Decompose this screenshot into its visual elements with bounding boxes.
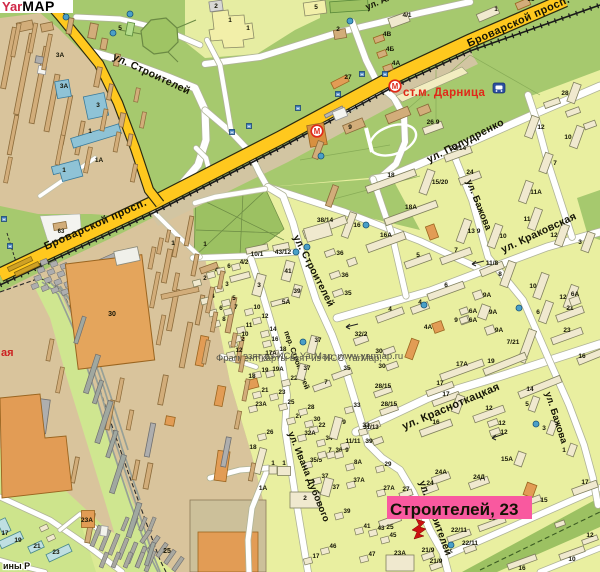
- svg-text:12: 12: [559, 294, 567, 301]
- svg-text:16: 16: [518, 565, 526, 572]
- svg-text:46: 46: [330, 543, 337, 550]
- svg-text:36: 36: [336, 250, 344, 257]
- svg-text:17: 17: [436, 380, 444, 387]
- svg-text:41: 41: [364, 523, 371, 530]
- svg-text:37А: 37А: [353, 477, 365, 484]
- svg-text:28/15: 28/15: [381, 401, 398, 408]
- svg-text:27А: 27А: [383, 485, 395, 492]
- svg-text:10: 10: [529, 283, 537, 290]
- svg-text:33: 33: [527, 0, 535, 3]
- svg-text:6: 6: [219, 305, 223, 312]
- svg-text:28/15: 28/15: [375, 383, 392, 390]
- svg-text:14: 14: [270, 326, 277, 333]
- svg-text:Н: Н: [8, 244, 11, 249]
- svg-text:21/9: 21/9: [422, 547, 435, 554]
- svg-text:35: 35: [344, 290, 352, 297]
- svg-text:19: 19: [14, 537, 22, 544]
- svg-text:10: 10: [242, 331, 249, 338]
- svg-text:19А: 19А: [272, 366, 284, 373]
- svg-text:Н: Н: [247, 124, 250, 129]
- svg-text:27: 27: [344, 74, 352, 81]
- svg-text:24Д: 24Д: [473, 474, 485, 481]
- svg-text:18: 18: [248, 373, 256, 380]
- svg-text:2: 2: [214, 3, 218, 10]
- svg-text:8: 8: [498, 271, 502, 278]
- svg-text:ая: ая: [1, 347, 14, 359]
- svg-text:15: 15: [540, 497, 548, 504]
- svg-text:2: 2: [303, 495, 307, 502]
- svg-text:18: 18: [249, 444, 257, 451]
- svg-text:22/11: 22/11: [451, 527, 467, 534]
- svg-text:43: 43: [378, 525, 385, 532]
- svg-text:12: 12: [498, 420, 506, 427]
- svg-text:16: 16: [272, 336, 279, 343]
- svg-text:Строителей, 23: Строителей, 23: [390, 500, 518, 519]
- svg-text:45: 45: [390, 532, 397, 539]
- svg-text:33: 33: [354, 402, 361, 409]
- svg-text:21: 21: [33, 543, 41, 550]
- svg-text:4А: 4А: [424, 324, 433, 331]
- svg-text:26 9: 26 9: [427, 119, 440, 126]
- svg-text:9: 9: [348, 124, 352, 131]
- svg-text:14: 14: [526, 386, 534, 393]
- svg-text:30: 30: [108, 311, 116, 318]
- svg-text:2: 2: [203, 275, 207, 282]
- svg-text:23: 23: [563, 327, 571, 334]
- svg-text:23А: 23А: [81, 517, 93, 524]
- svg-text:1: 1: [246, 25, 250, 32]
- svg-text:7: 7: [553, 160, 557, 167]
- svg-text:28: 28: [308, 404, 315, 411]
- svg-text:Н: Н: [336, 92, 339, 97]
- svg-text:4: 4: [388, 306, 392, 313]
- svg-text:5А: 5А: [282, 299, 291, 306]
- svg-text:29: 29: [385, 461, 392, 468]
- svg-text:25: 25: [163, 548, 171, 555]
- svg-text:16А: 16А: [380, 232, 392, 239]
- svg-text:1: 1: [282, 460, 286, 467]
- svg-text:10/1: 10/1: [251, 251, 264, 258]
- svg-text:31/13: 31/13: [363, 424, 379, 431]
- svg-text:18: 18: [387, 172, 395, 179]
- svg-text:7: 7: [324, 379, 328, 386]
- svg-text:24А: 24А: [435, 469, 447, 476]
- svg-text:37: 37: [315, 337, 322, 344]
- svg-text:1: 1: [62, 167, 66, 174]
- svg-text:10: 10: [564, 134, 572, 141]
- svg-text:12: 12: [262, 313, 269, 320]
- svg-text:Н: Н: [383, 72, 386, 77]
- svg-text:Н: Н: [296, 106, 299, 111]
- svg-text:6: 6: [536, 309, 540, 316]
- svg-text:18А: 18А: [405, 204, 417, 211]
- svg-text:1А: 1А: [259, 485, 268, 492]
- svg-text:25: 25: [386, 524, 394, 531]
- svg-text:23А: 23А: [255, 401, 267, 408]
- svg-text:26: 26: [267, 429, 274, 436]
- svg-text:Н: Н: [2, 217, 5, 222]
- svg-text:37: 37: [332, 484, 340, 491]
- svg-text:9: 9: [345, 447, 349, 454]
- svg-text:22/11: 22/11: [462, 540, 478, 547]
- svg-text:4В: 4В: [383, 31, 392, 38]
- svg-text:10: 10: [254, 304, 261, 311]
- svg-text:2: 2: [336, 26, 340, 33]
- svg-text:41: 41: [284, 268, 292, 275]
- svg-text:21/9: 21/9: [430, 558, 443, 565]
- svg-text:4Б: 4Б: [386, 46, 395, 53]
- svg-text:9А: 9А: [489, 309, 498, 316]
- svg-text:16: 16: [578, 353, 586, 360]
- svg-text:3: 3: [225, 281, 229, 288]
- svg-text:1: 1: [228, 17, 232, 24]
- svg-text:5: 5: [118, 25, 122, 32]
- svg-text:35: 35: [344, 365, 351, 372]
- svg-text:1: 1: [494, 6, 498, 13]
- svg-text:1А: 1А: [95, 157, 104, 164]
- svg-text:ст.м. Дарница: ст.м. Дарница: [403, 87, 486, 99]
- svg-text:3: 3: [542, 425, 546, 432]
- svg-text:47: 47: [369, 551, 376, 558]
- svg-text:15/20: 15/20: [432, 179, 449, 186]
- svg-text:12: 12: [586, 532, 594, 539]
- svg-text:23: 23: [279, 389, 286, 396]
- svg-text:30: 30: [378, 363, 386, 370]
- svg-text:11: 11: [524, 216, 531, 223]
- svg-text:8: 8: [222, 316, 226, 323]
- svg-text:1: 1: [271, 460, 275, 467]
- svg-text:43/12: 43/12: [275, 249, 292, 256]
- svg-text:ины Р: ины Р: [3, 561, 30, 571]
- svg-text:3А: 3А: [60, 83, 69, 90]
- svg-text:взят из ИСС YarMap, www.yarma: взят из ИСС YarMap, www.yarmap.ru: [243, 351, 403, 362]
- svg-text:3А: 3А: [56, 52, 65, 59]
- svg-text:9А: 9А: [495, 327, 504, 334]
- svg-text:Н: Н: [230, 130, 233, 135]
- svg-text:27: 27: [402, 486, 410, 493]
- svg-text:1: 1: [562, 447, 566, 454]
- svg-text:12: 12: [537, 124, 545, 131]
- svg-text:28: 28: [561, 90, 569, 97]
- svg-text:6А: 6А: [571, 291, 580, 298]
- svg-text:16: 16: [353, 222, 361, 229]
- svg-text:9: 9: [454, 317, 458, 324]
- svg-text:Н: Н: [360, 72, 363, 77]
- svg-text:7: 7: [454, 247, 458, 254]
- svg-text:6А: 6А: [469, 317, 478, 324]
- svg-text:9: 9: [342, 419, 346, 426]
- svg-text:32А: 32А: [304, 430, 316, 437]
- svg-text:11А: 11А: [530, 189, 542, 196]
- svg-text:11/11: 11/11: [346, 438, 361, 445]
- svg-text:17: 17: [313, 553, 320, 560]
- svg-text:7: 7: [234, 304, 238, 311]
- svg-text:39: 39: [293, 288, 301, 295]
- svg-text:25: 25: [288, 399, 295, 406]
- svg-text:12: 12: [485, 405, 493, 412]
- svg-text:36: 36: [341, 272, 349, 279]
- svg-text:6А: 6А: [469, 308, 478, 315]
- svg-text:21: 21: [262, 387, 269, 394]
- svg-text:32/2: 32/2: [355, 331, 368, 338]
- svg-text:39: 39: [365, 438, 373, 445]
- svg-text:3: 3: [578, 239, 582, 246]
- svg-text:YarМАР: YarМАР: [2, 0, 55, 14]
- svg-text:7/21: 7/21: [507, 339, 520, 346]
- svg-text:10: 10: [499, 233, 507, 240]
- svg-text:6: 6: [444, 282, 448, 289]
- svg-text:3: 3: [96, 102, 100, 109]
- svg-text:22: 22: [319, 422, 326, 429]
- svg-text:4/2: 4/2: [240, 259, 249, 266]
- svg-text:6: 6: [227, 263, 231, 270]
- svg-text:17: 17: [442, 391, 450, 398]
- svg-text:17: 17: [581, 479, 589, 486]
- svg-text:5: 5: [232, 295, 236, 302]
- svg-text:13 9: 13 9: [468, 228, 481, 235]
- svg-text:19: 19: [262, 367, 269, 374]
- svg-text:11/8: 11/8: [486, 260, 499, 267]
- svg-text:М: М: [314, 127, 321, 136]
- svg-text:1: 1: [203, 241, 207, 248]
- svg-text:4/1: 4/1: [402, 12, 411, 19]
- svg-text:8А: 8А: [354, 459, 362, 466]
- svg-text:15А: 15А: [501, 456, 513, 463]
- svg-text:5: 5: [416, 252, 420, 259]
- svg-text:23А: 23А: [394, 550, 406, 557]
- svg-text:11: 11: [246, 322, 253, 329]
- svg-text:3: 3: [257, 282, 261, 289]
- svg-text:23: 23: [52, 549, 60, 556]
- svg-text:17А: 17А: [456, 361, 468, 368]
- svg-text:10: 10: [568, 556, 576, 563]
- svg-text:17: 17: [2, 530, 9, 537]
- svg-text:5: 5: [525, 401, 529, 408]
- svg-text:39: 39: [344, 508, 351, 515]
- svg-text:9А: 9А: [483, 292, 492, 299]
- svg-text:М: М: [392, 82, 399, 91]
- svg-text:1: 1: [171, 240, 175, 247]
- svg-text:5: 5: [314, 4, 318, 11]
- svg-text:24: 24: [466, 169, 474, 176]
- svg-text:37: 37: [304, 365, 311, 372]
- svg-text:19: 19: [487, 358, 495, 365]
- svg-text:4А: 4А: [392, 60, 401, 67]
- svg-text:1: 1: [88, 128, 92, 135]
